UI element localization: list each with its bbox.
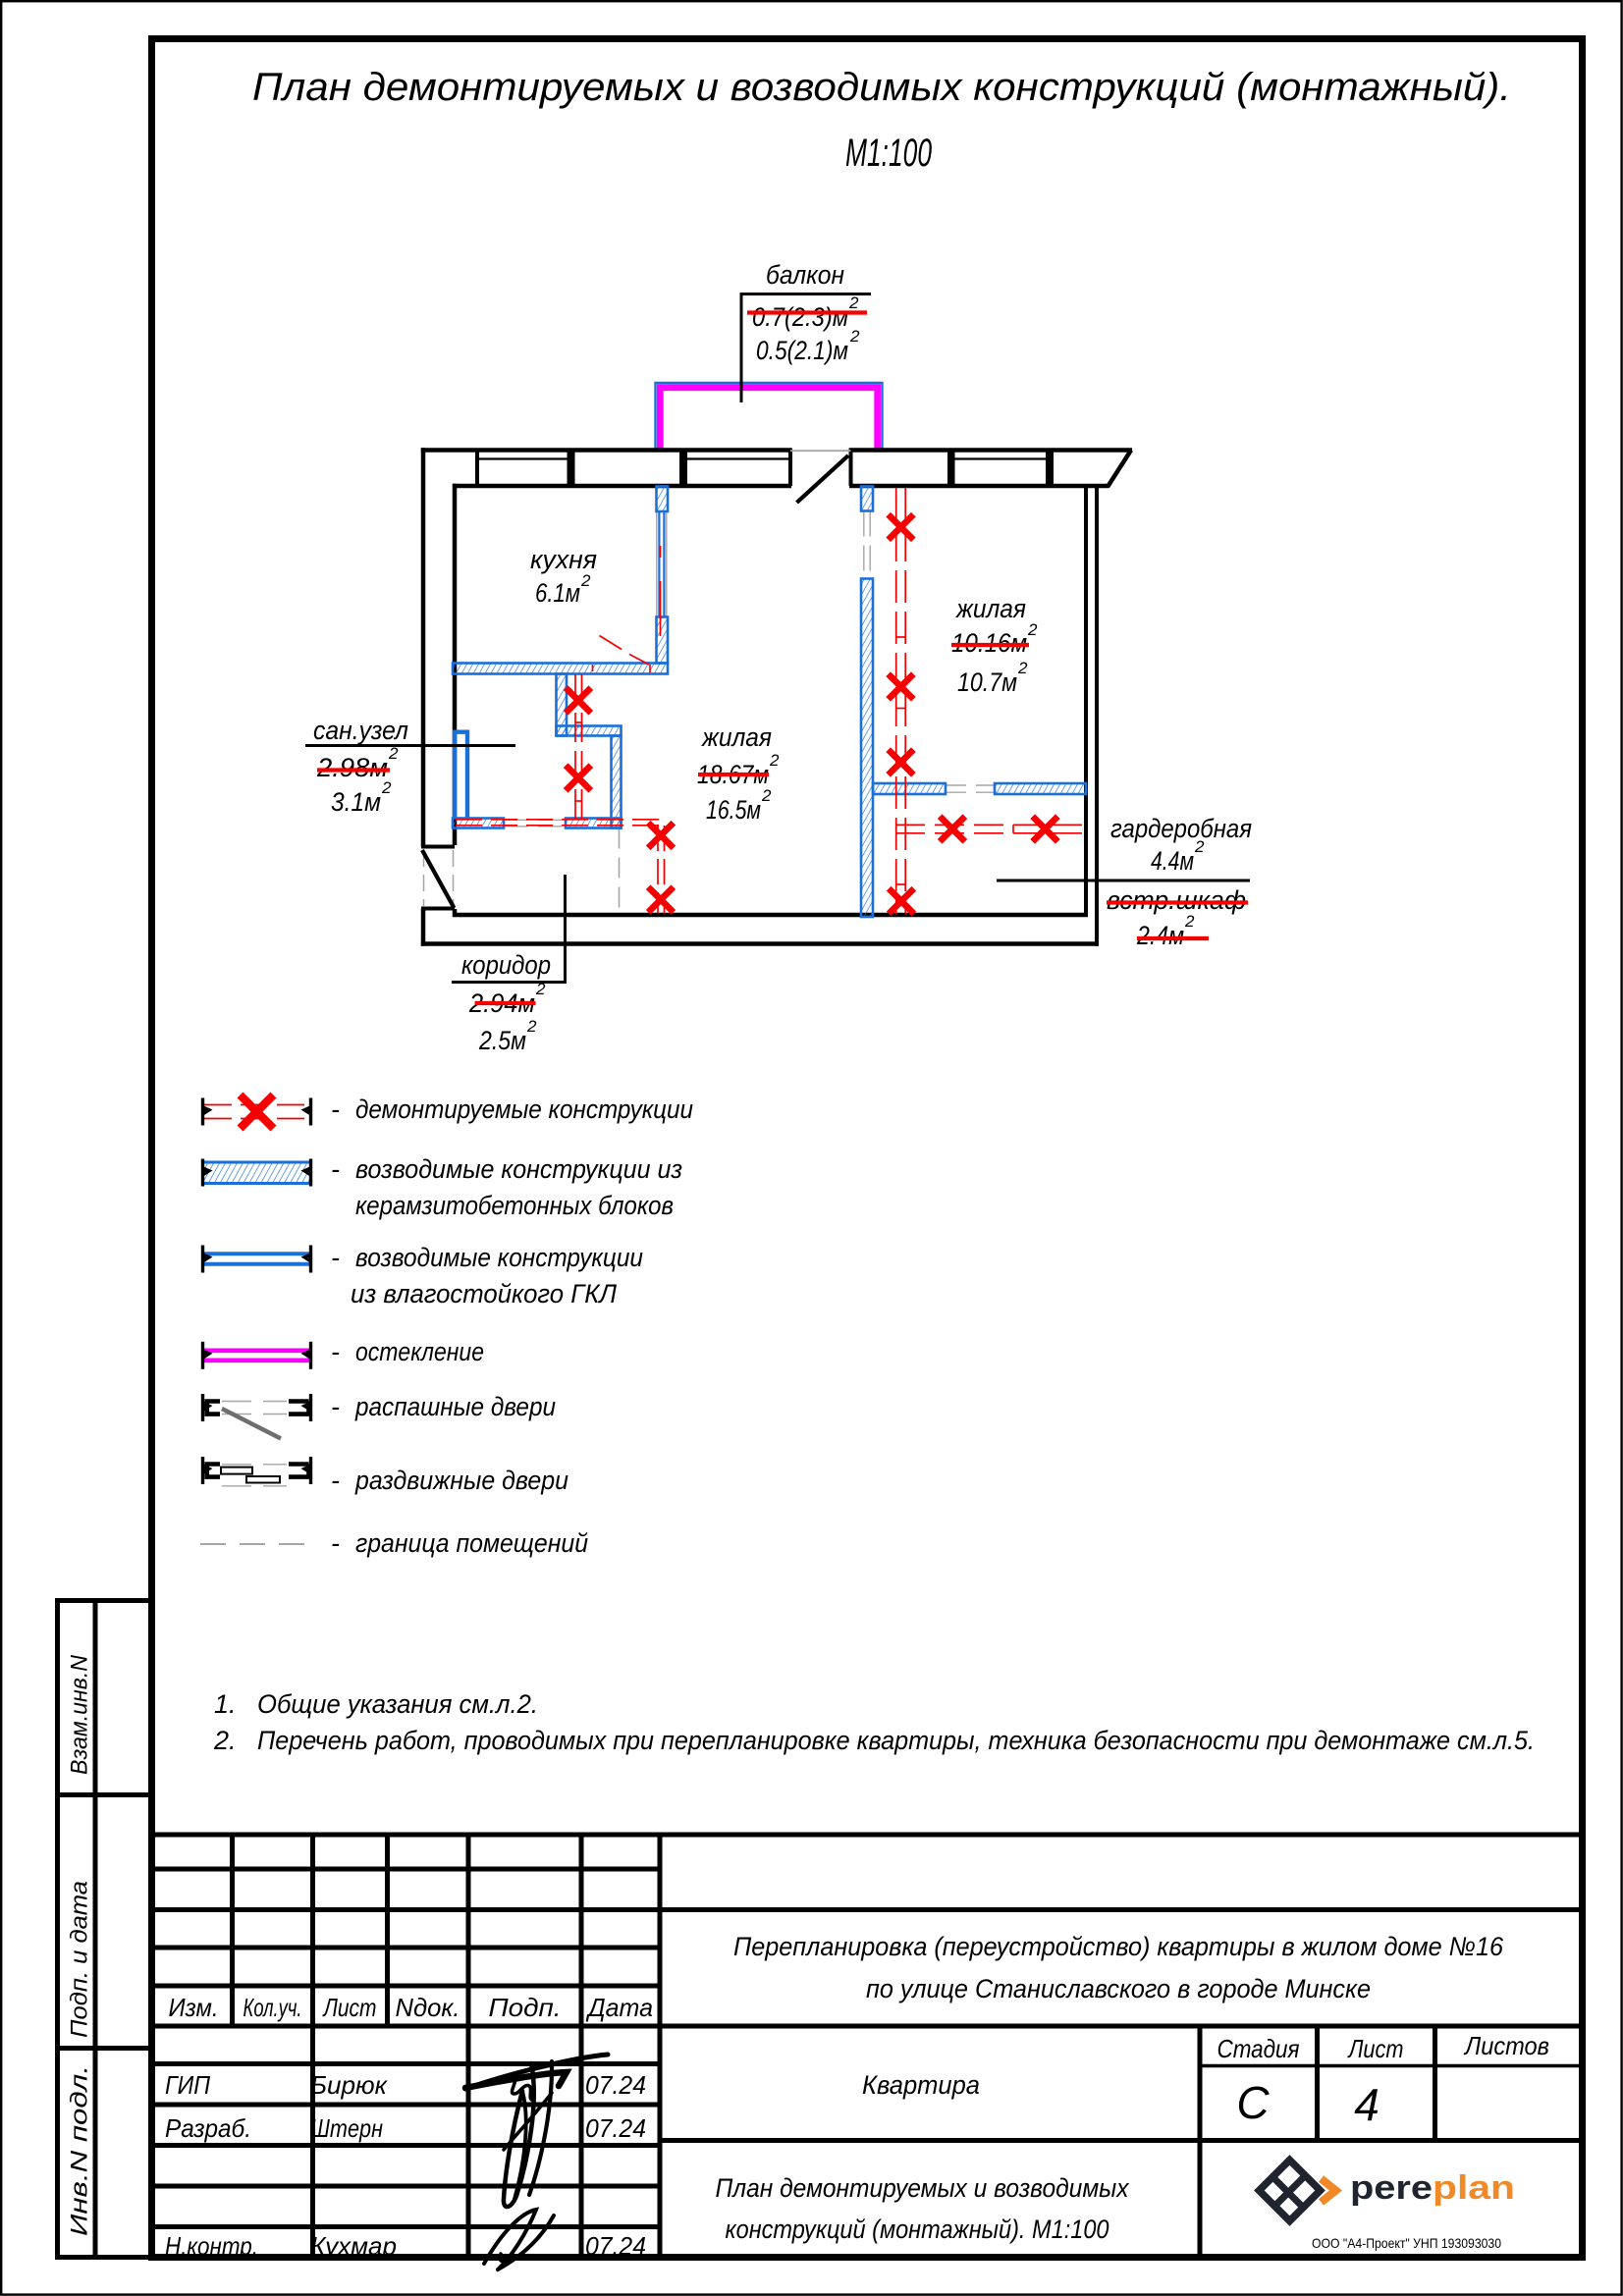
svg-text:Стадия: Стадия (1217, 2034, 1300, 2063)
svg-text:С: С (1236, 2077, 1270, 2128)
svg-text:2.4м: 2.4м (1136, 921, 1184, 950)
svg-text:plan: plan (1433, 2169, 1515, 2207)
svg-text:-: - (331, 1392, 340, 1421)
svg-text:2.: 2. (213, 1726, 237, 1755)
svg-text:План демонтируемых и возводимы: План демонтируемых и возводимых (716, 2173, 1130, 2203)
svg-text:2: 2 (580, 571, 591, 590)
svg-text:2: 2 (848, 294, 859, 312)
svg-text:2: 2 (535, 980, 546, 998)
svg-text:16.5м: 16.5м (706, 795, 761, 825)
svg-text:Листов: Листов (1463, 2031, 1549, 2060)
svg-text:керамзитобетонных блоков: керамзитобетонных блоков (355, 1191, 674, 1220)
svg-text:3.1м: 3.1м (331, 787, 381, 817)
svg-text:План демонтируемых и возвод: План демонтируемых и возводимых конструк… (252, 66, 1511, 109)
svg-text:граница помещений: граница помещений (355, 1528, 588, 1558)
svg-text:остекление: остекление (355, 1337, 484, 1366)
svg-text:6.1м: 6.1м (535, 578, 580, 608)
svg-text:-: - (331, 1154, 340, 1184)
svg-text:Дата: Дата (585, 1993, 653, 2022)
svg-text:Лист: Лист (1347, 2034, 1404, 2063)
svg-text:2: 2 (526, 1017, 537, 1036)
svg-text:балкон: балкон (766, 260, 844, 290)
svg-text:4: 4 (1354, 2079, 1380, 2130)
svg-text:Перечень работ, проводимых при: Перечень работ, проводимых при переплани… (257, 1726, 1535, 1755)
svg-text:Инв.N подл.: Инв.N подл. (67, 2065, 93, 2236)
svg-text:из влагостойкого ГКЛ: из влагостойкого ГКЛ (351, 1279, 617, 1308)
svg-text:Бирюк: Бирюк (310, 2070, 389, 2100)
svg-text:0.5(2.1)м: 0.5(2.1)м (756, 336, 848, 365)
svg-text:Кухмар: Кухмар (310, 2231, 397, 2261)
svg-text:ООО "А4-Проект" УНП 193093030: ООО "А4-Проект" УНП 193093030 (1312, 2235, 1501, 2251)
svg-text:Взам.инв.N: Взам.инв.N (67, 1654, 93, 1775)
svg-text:10.7м: 10.7м (957, 667, 1017, 697)
svg-text:Квартира: Квартира (862, 2070, 980, 2100)
svg-text:Изм.: Изм. (169, 1993, 219, 2022)
svg-text:Лист: Лист (322, 1993, 377, 2022)
svg-text:2: 2 (1027, 620, 1038, 639)
svg-text:2: 2 (1194, 837, 1205, 856)
svg-text:-: - (331, 1095, 340, 1124)
svg-text:2.5м: 2.5м (478, 1026, 526, 1055)
svg-text:Кол.уч.: Кол.уч. (243, 1993, 302, 2022)
svg-text:сан.узел: сан.узел (313, 716, 408, 745)
svg-text:конструкций (монтажный). М1:10: конструкций (монтажный). М1:100 (726, 2215, 1109, 2244)
svg-text:раздвижные двери: раздвижные двери (354, 1466, 568, 1495)
svg-text:1.: 1. (214, 1689, 237, 1719)
svg-text:Перепланировка (переустройств: Перепланировка (переустройство) квартиры… (733, 1932, 1504, 1961)
svg-text:коридор: коридор (461, 950, 551, 980)
svg-text:Штерн: Штерн (310, 2113, 383, 2143)
svg-text:-: - (331, 1243, 340, 1272)
svg-text:жилая: жилая (955, 594, 1026, 623)
svg-text:-: - (331, 1337, 340, 1366)
svg-text:М1:100: М1:100 (845, 132, 932, 175)
svg-text:Разраб.: Разраб. (165, 2113, 251, 2143)
svg-text:ГИП: ГИП (165, 2070, 210, 2100)
svg-text:07.24: 07.24 (585, 2113, 646, 2143)
svg-text:Общие указания см.л.2.: Общие указания см.л.2. (257, 1689, 538, 1719)
svg-text:07.24: 07.24 (585, 2070, 646, 2100)
svg-text:Подп. и дата: Подп. и дата (67, 1881, 93, 2038)
svg-text:демонтируемые конструкции: демонтируемые конструкции (355, 1095, 693, 1124)
svg-text:2: 2 (1017, 659, 1028, 677)
svg-text:по улице Станиславского в горо: по улице Станиславского в городе Минске (866, 1974, 1371, 2003)
svg-text:Н.контр.: Н.контр. (165, 2231, 258, 2261)
svg-text:pere: pere (1350, 2169, 1433, 2207)
svg-text:встр.шкаф: встр.шкаф (1107, 885, 1246, 915)
svg-text:4.4м: 4.4м (1151, 846, 1194, 876)
svg-text:распашные двери: распашные двери (354, 1392, 556, 1421)
svg-text:Подп.: Подп. (489, 1993, 562, 2022)
svg-text:2: 2 (381, 778, 392, 797)
svg-text:жилая: жилая (701, 722, 772, 752)
svg-text:-: - (331, 1528, 340, 1558)
svg-text:2: 2 (1184, 912, 1195, 931)
svg-text:2: 2 (388, 744, 399, 763)
svg-text:возводимые конструкции: возводимые конструкции (355, 1243, 643, 1272)
svg-text:2: 2 (761, 786, 772, 805)
svg-text:возводимые конструкции из: возводимые конструкции из (355, 1154, 682, 1184)
svg-text:Nдок.: Nдок. (396, 1993, 460, 2022)
svg-text:07.24: 07.24 (585, 2231, 646, 2261)
svg-text:2.98м: 2.98м (316, 753, 388, 782)
svg-text:кухня: кухня (530, 545, 597, 574)
svg-text:-: - (331, 1466, 340, 1495)
svg-text:0.7(2.3)м: 0.7(2.3)м (752, 302, 848, 332)
svg-text:2: 2 (849, 327, 860, 346)
svg-text:2: 2 (769, 751, 780, 770)
svg-text:гардеробная: гардеробная (1110, 814, 1252, 843)
